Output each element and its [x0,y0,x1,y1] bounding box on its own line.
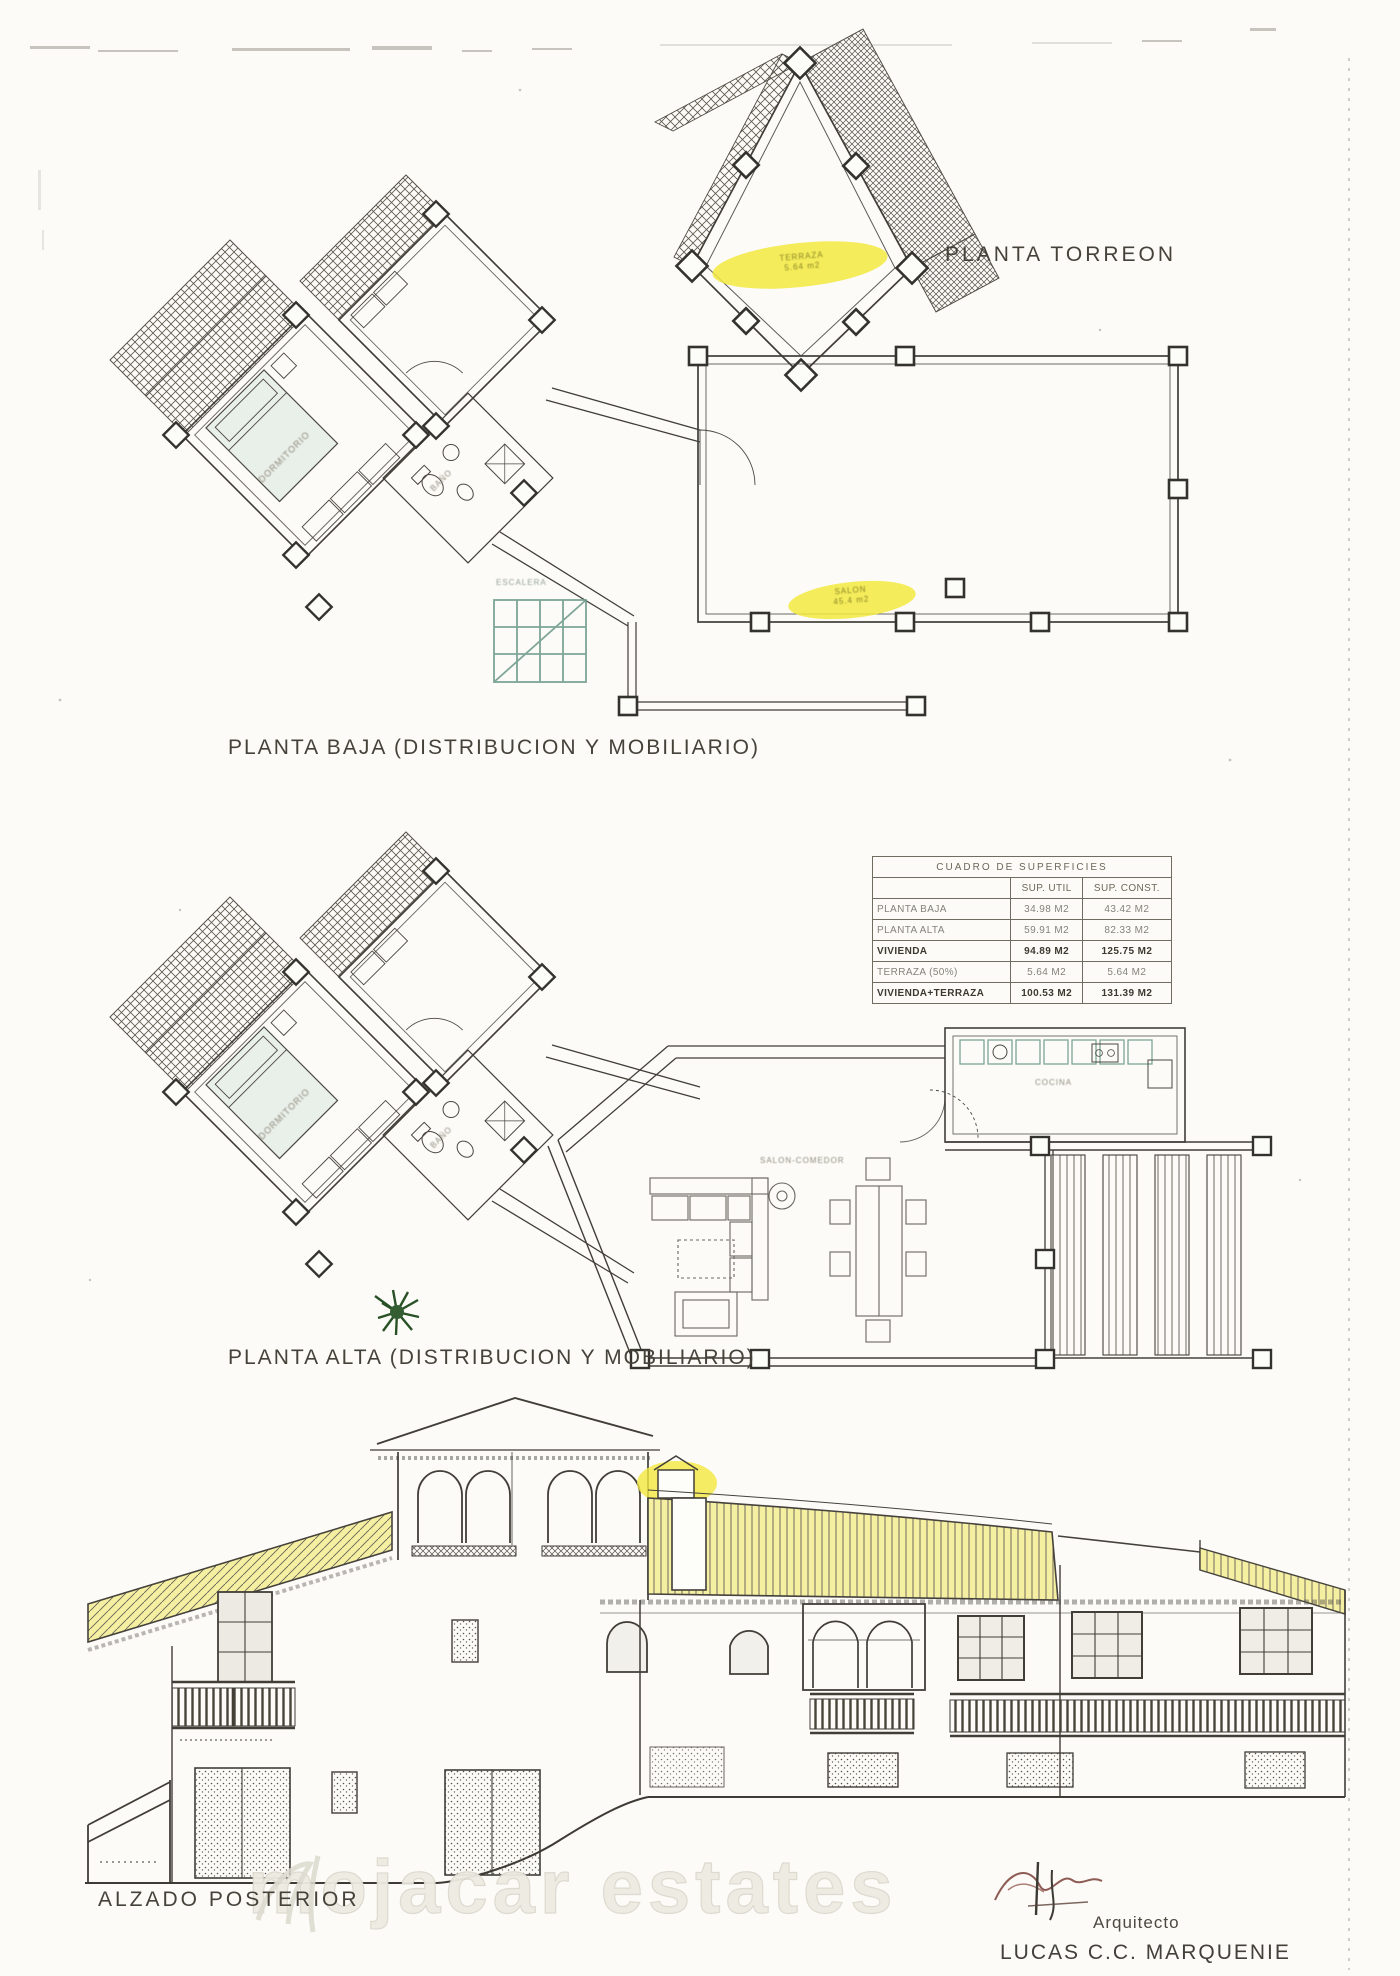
table-row: TERRAZA (50%) 5.64 M2 5.64 M2 [873,962,1172,983]
torreon-plan [655,29,999,391]
row-util: 5.64 M2 [1011,962,1082,983]
torreon-plan-label: PLANTA TORREON [945,243,1176,267]
row-const: 82.33 M2 [1082,920,1171,941]
row-const: 131.39 M2 [1082,983,1171,1004]
architect-title: Arquitecto [1093,1913,1180,1933]
architect-name: LUCAS C.C. MARQUENIE [1000,1941,1291,1965]
baja-salon-wing [619,347,1187,715]
table-row: PLANTA BAJA 34.98 M2 43.42 M2 [873,899,1172,920]
row-const: 43.42 M2 [1082,899,1171,920]
alta-terrace-columns [1045,1155,1262,1358]
table-row: VIVIENDA+TERRAZA 100.53 M2 131.39 M2 [873,983,1172,1004]
alta-bedroom-cluster [110,832,700,1283]
plan-line-art [0,0,1400,1976]
scanned-plan-page: mojacar estates PLANTA TORREON PLANTA BA… [0,0,1400,1976]
elevation-tower [370,1398,660,1600]
planta-alta-label: PLANTA ALTA (DISTRIBUCION Y MOBILIARIO) [228,1346,756,1370]
baja-bedroom-cluster [110,175,700,626]
row-const: 125.75 M2 [1082,941,1171,962]
areas-col-blank [873,878,1011,899]
row-util: 59.91 M2 [1011,920,1082,941]
table-row: PLANTA ALTA 59.91 M2 82.33 M2 [873,920,1172,941]
areas-col-util: SUP. UTIL [1011,878,1082,899]
row-util: 94.89 M2 [1011,941,1082,962]
elevation-porch [607,1604,925,1787]
elevation-ramp [88,1780,170,1883]
alta-plant-icon [375,1290,419,1335]
row-util: 100.53 M2 [1011,983,1082,1004]
planta-baja-label: PLANTA BAJA (DISTRIBUCION Y MOBILIARIO) [228,736,760,760]
row-const: 5.64 M2 [1082,962,1171,983]
row-util: 34.98 M2 [1011,899,1082,920]
areas-col-const: SUP. CONST. [1082,878,1171,899]
alta-living-label: SALON-COMEDOR [760,1156,845,1165]
alta-furniture [650,1158,926,1342]
table-row: VIVIENDA 94.89 M2 125.75 M2 [873,941,1172,962]
row-label: VIVIENDA [873,941,1011,962]
row-label: VIVIENDA+TERRAZA [873,983,1011,1004]
rear-elevation [85,1398,1345,1883]
elevation-roofs [88,1490,1345,1650]
areas-table: CUADRO DE SUPERFICIES SUP. UTIL SUP. CON… [872,856,1172,1004]
row-label: PLANTA BAJA [873,899,1011,920]
baja-stairs-label: ESCALERA [496,578,547,587]
row-label: TERRAZA (50%) [873,962,1011,983]
alzado-posterior-label: ALZADO POSTERIOR [98,1888,360,1912]
alta-kitchen-label: COCINA [1035,1078,1072,1087]
areas-table-title: CUADRO DE SUPERFICIES [873,857,1172,878]
architect-signature [995,1862,1102,1920]
baja-stairs [494,600,586,682]
elevation-left-wing [172,1592,640,1883]
row-label: PLANTA ALTA [873,920,1011,941]
